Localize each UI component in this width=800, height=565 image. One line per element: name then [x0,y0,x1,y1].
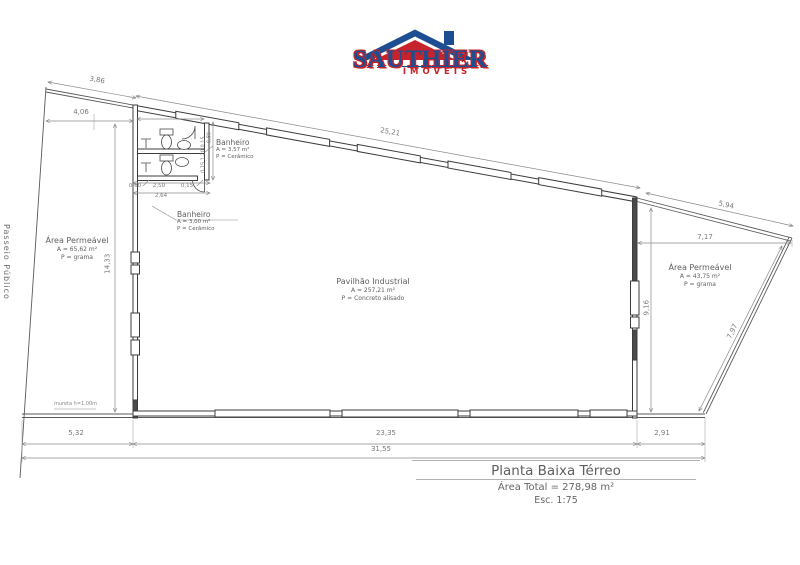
logo-subtitle: IMÓVEIS [402,66,472,77]
label-mureta: mureta h=1,00m [54,401,97,407]
sink-1 [178,141,191,150]
label-passeio-publico: Passeio Público [2,224,11,300]
label-banheiro-bottom: Banheiro A = 3,00 m² P = Cerâmico [177,210,247,233]
toilet-bowl-2 [162,161,172,175]
dim-top-left-h: 4,06 [61,109,101,116]
dim-bath-w3: 0,15 [175,184,199,190]
dim-bottom-center: 23,35 [366,430,406,437]
label-pavilhao-industrial: Pavilhão Industrial A = 257,21 m² P = Co… [308,277,438,302]
titleblock-area-total: Área Total = 278,98 m² [412,482,700,493]
dim-bath-w1: 0,60 [123,184,147,190]
toilet-bowl-1 [162,135,172,149]
label-area-permeavel-right: Área Permeável A = 43,75 m² P = grama [650,263,750,288]
floor-plan-page: SAUTHIER IMÓVEIS Passeio Público mureta … [0,0,800,565]
toilet-tank-1 [160,129,173,135]
dim-bottom-total: 31,55 [361,446,401,453]
valve-1 [141,139,151,148]
dim-bath-door: 0,80 [207,128,212,148]
label-banheiro-top: Banheiro A = 3,57 m² P = Cerâmico [216,138,286,161]
dim-bottom-left: 5,32 [56,430,96,437]
dim-right-wall-v: 9,16 [643,288,650,328]
bathroom-fixtures [141,126,205,192]
door-swing-1 [182,126,195,139]
dim-bath-w2: 2,50 [147,184,171,190]
dim-bath-total: 2,64 [149,194,173,200]
sink-2 [176,158,189,167]
titleblock-title: Planta Baixa Térreo [412,463,700,479]
titleblock-scale: Esc. 1:75 [412,495,700,506]
dim-right-h: 7,17 [685,234,725,241]
toilet-tank-2 [160,155,173,161]
valve-2 [141,163,151,172]
dim-left-v: 14,33 [104,244,111,284]
dim-bottom-right: 2,91 [642,430,682,437]
